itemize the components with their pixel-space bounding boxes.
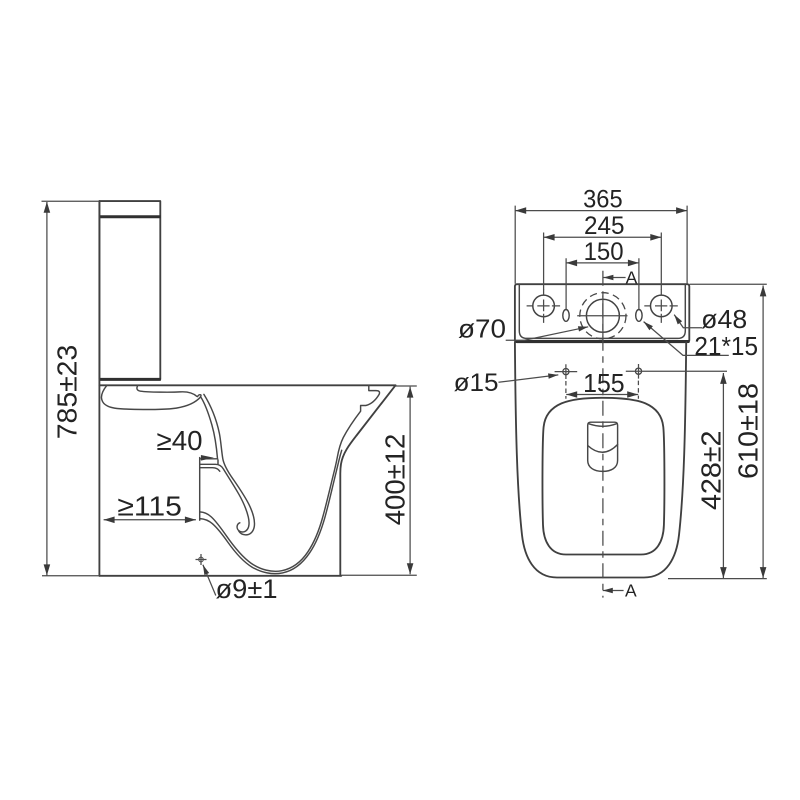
svg-text:150: 150 — [584, 238, 624, 266]
svg-text:428±2: 428±2 — [696, 431, 727, 511]
svg-text:400±12: 400±12 — [380, 434, 411, 526]
svg-text:ø9±1: ø9±1 — [216, 574, 278, 604]
svg-text:365: 365 — [583, 185, 623, 213]
svg-text:≥115: ≥115 — [117, 491, 182, 522]
svg-text:155: 155 — [583, 368, 625, 398]
svg-text:ø70: ø70 — [458, 313, 506, 343]
svg-text:ø15: ø15 — [454, 369, 499, 397]
svg-text:ø48: ø48 — [701, 304, 747, 334]
svg-text:245: 245 — [584, 212, 625, 240]
svg-text:≥40: ≥40 — [157, 425, 203, 456]
svg-text:785±23: 785±23 — [52, 345, 83, 440]
svg-text:21*15: 21*15 — [694, 331, 758, 361]
svg-text:A: A — [626, 267, 638, 287]
svg-text:610±18: 610±18 — [733, 383, 764, 479]
svg-text:A: A — [625, 580, 637, 600]
